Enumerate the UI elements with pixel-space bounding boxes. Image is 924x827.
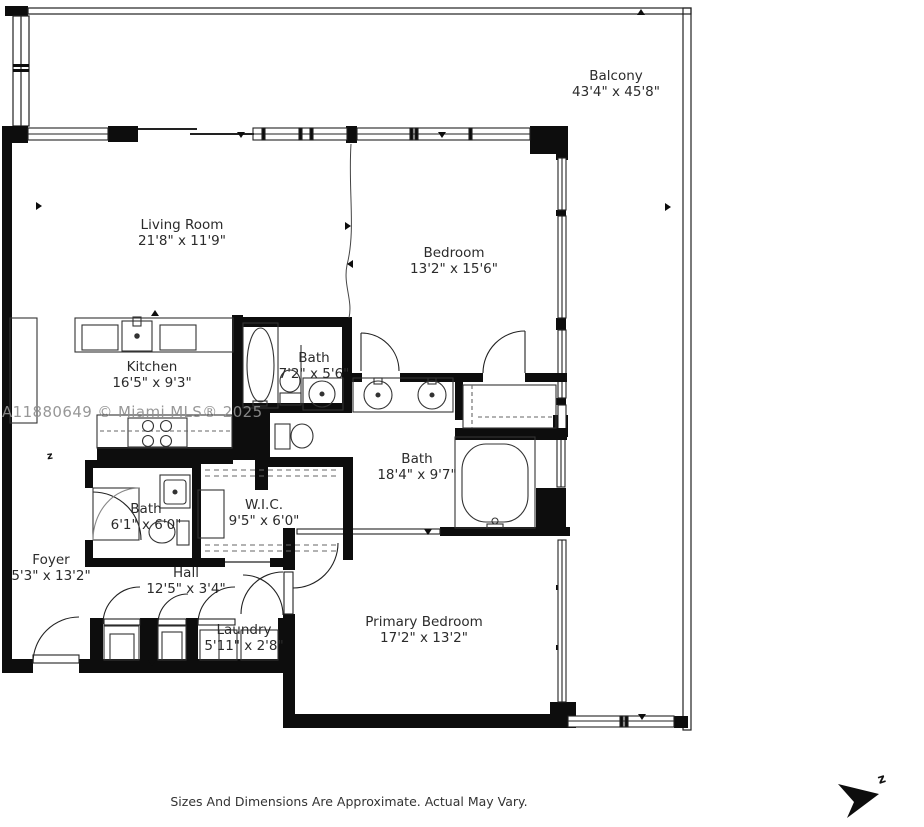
room-label-laundry: Laundry 5'11" x 2'8" bbox=[204, 622, 283, 654]
railing-post bbox=[5, 6, 28, 16]
room-label-foyer: Foyer 5'3" x 13'2" bbox=[11, 552, 90, 584]
room-label-primary-bath: Bath 18'4" x 9'7" bbox=[377, 451, 456, 483]
room-label-bedroom: Bedroom 13'2" x 15'6" bbox=[410, 245, 498, 277]
room-name: Bath bbox=[401, 451, 432, 467]
room-label-bath2: Bath 7'2" x 5'6" bbox=[279, 350, 350, 382]
sliding-opening bbox=[297, 529, 440, 534]
room-label-kitchen: Kitchen 16'5" x 9'3" bbox=[112, 359, 191, 391]
bedroom-closet bbox=[463, 385, 556, 428]
room-label-hall: Hall 12'5" x 3'4" bbox=[146, 565, 225, 597]
closet-door bbox=[103, 587, 140, 625]
room-name: Primary Bedroom bbox=[365, 614, 483, 630]
room-label-balcony: Balcony 43'4" x 45'8" bbox=[572, 68, 660, 100]
exterior-walls bbox=[2, 126, 688, 728]
room-name: Laundry bbox=[216, 622, 271, 638]
room-name: Foyer bbox=[32, 552, 69, 568]
room-dims: 6'1" x 6'0" bbox=[111, 517, 182, 533]
compass-icon bbox=[838, 784, 879, 818]
mls-watermark: A11880649 © Miami MLS® 2025 bbox=[2, 403, 263, 421]
kitchen-counter bbox=[75, 318, 233, 352]
room-dims: 5'11" x 2'8" bbox=[204, 638, 283, 654]
soaking-tub bbox=[455, 437, 535, 528]
hall-closet bbox=[158, 626, 186, 660]
room-dims: 12'5" x 3'4" bbox=[146, 581, 225, 597]
window bbox=[568, 716, 674, 727]
kitchen-sink bbox=[122, 317, 152, 351]
bedroom-closet-door bbox=[483, 331, 525, 373]
room-name: Bath bbox=[298, 350, 329, 366]
balcony-right-rail bbox=[683, 8, 691, 730]
toilet bbox=[275, 424, 313, 449]
double-vanity bbox=[353, 378, 453, 412]
bathtub bbox=[243, 323, 278, 408]
balcony-top-rail bbox=[28, 8, 691, 14]
room-dims: 13'2" x 15'6" bbox=[410, 261, 498, 277]
hall-closet bbox=[104, 626, 139, 660]
room-name: Living Room bbox=[141, 217, 224, 233]
room-dims: 9'5" x 6'0" bbox=[229, 513, 300, 529]
sliding-door bbox=[138, 129, 254, 134]
room-name: Kitchen bbox=[127, 359, 178, 375]
room-dims: 21'8" x 11'9" bbox=[138, 233, 226, 249]
room-dims: 5'3" x 13'2" bbox=[11, 568, 90, 584]
closet-door bbox=[158, 594, 188, 625]
room-label-living-room: Living Room 21'8" x 11'9" bbox=[138, 217, 226, 249]
wic-dresser bbox=[198, 490, 224, 538]
primary-bedroom-bottom-wall bbox=[283, 714, 556, 728]
window bbox=[28, 128, 108, 140]
room-label-bath3: Bath 6'1" x 6'0" bbox=[111, 501, 182, 533]
room-name: Hall bbox=[173, 565, 199, 581]
window bbox=[253, 128, 347, 140]
room-dims: 18'4" x 9'7" bbox=[377, 467, 456, 483]
floor-plan-page: Balcony 43'4" x 45'8" Living Room 21'8" … bbox=[0, 0, 924, 827]
room-name: W.I.C. bbox=[245, 497, 283, 513]
room-name: Bath bbox=[130, 501, 161, 517]
bedroom-suite-door bbox=[361, 333, 399, 371]
room-label-primary-bedroom: Primary Bedroom 17'2" x 13'2" bbox=[365, 614, 483, 646]
room-label-wic: W.I.C. 9'5" x 6'0" bbox=[229, 497, 300, 529]
room-dims: 17'2" x 13'2" bbox=[365, 630, 483, 646]
room-dims: 16'5" x 9'3" bbox=[112, 375, 191, 391]
room-dims: 7'2" x 5'6" bbox=[279, 366, 350, 382]
room-dims: 43'4" x 45'8" bbox=[572, 84, 660, 100]
room-name: Balcony bbox=[589, 68, 643, 84]
disclaimer-text: Sizes And Dimensions Are Approximate. Ac… bbox=[170, 794, 527, 809]
orientation-marker: z bbox=[46, 451, 53, 463]
room-name: Bedroom bbox=[423, 245, 484, 261]
room-divider-line bbox=[346, 144, 351, 318]
entry-door bbox=[33, 617, 79, 663]
